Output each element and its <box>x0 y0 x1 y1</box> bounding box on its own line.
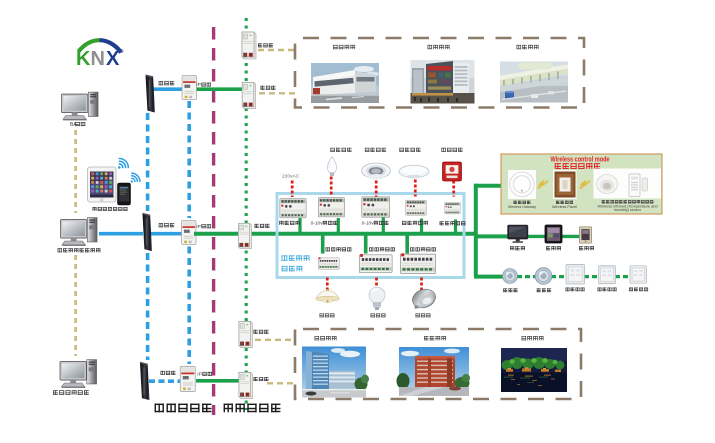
svg-text:N: N <box>91 48 105 70</box>
svg-text:humidity) sensor: humidity) sensor <box>614 208 642 212</box>
svg-text:X: X <box>106 48 120 70</box>
svg-text:IP: IP <box>196 224 201 230</box>
svg-text:0-10v: 0-10v <box>362 221 375 227</box>
svg-text:Wireless Panel: Wireless Panel <box>552 204 577 209</box>
svg-text:IP: IP <box>196 82 201 88</box>
svg-text:IP: IP <box>197 372 202 378</box>
svg-text:®: ® <box>120 48 124 55</box>
svg-text:0-10v: 0-10v <box>311 221 324 227</box>
svg-text:K: K <box>76 48 91 70</box>
svg-text:Wireless Gateway: Wireless Gateway <box>508 204 536 209</box>
svg-text:220vAC: 220vAC <box>282 174 300 180</box>
svg-text:Wireless control mode: Wireless control mode <box>551 155 610 164</box>
